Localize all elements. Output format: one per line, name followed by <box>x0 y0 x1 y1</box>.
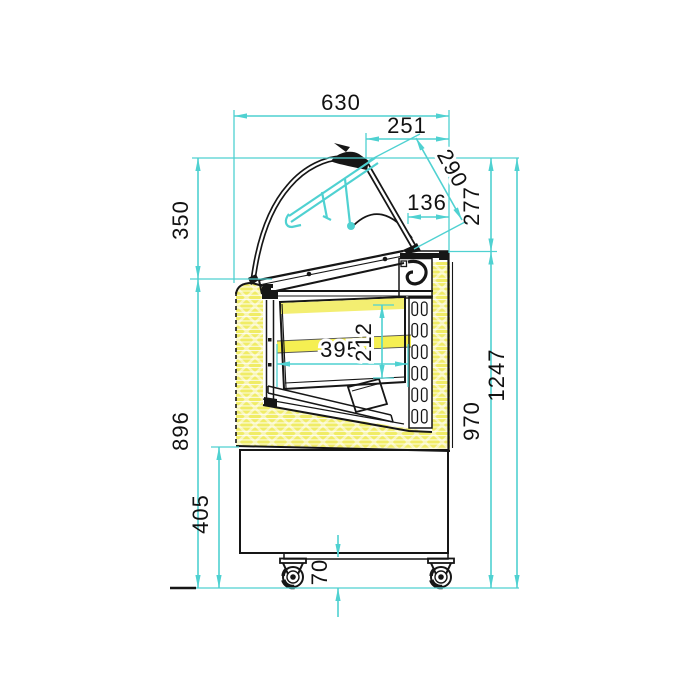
dim-70: 70 <box>307 535 338 617</box>
dim-label: 212 <box>351 322 376 362</box>
dim-896: 896 <box>168 279 198 588</box>
lid-hinge-cap <box>331 152 369 170</box>
rear-duct-pocket <box>399 259 432 299</box>
caster-left <box>280 559 306 588</box>
dimensions: 630 251 290 136 277 350 <box>168 90 519 617</box>
dim-label: 896 <box>168 411 193 451</box>
dim-label: 405 <box>188 494 213 534</box>
dim-label: 1247 <box>484 349 509 402</box>
dim-label: 290 <box>432 145 473 192</box>
dim-label: 350 <box>168 200 193 240</box>
caster-right <box>428 559 454 588</box>
dim-405: 405 <box>188 447 239 588</box>
technical-drawing-page: 630 251 290 136 277 350 <box>0 0 700 700</box>
dim-label: 630 <box>321 90 361 115</box>
dim-970: 970 <box>459 252 491 589</box>
dim-label: 251 <box>387 113 427 138</box>
pivot-dot <box>347 222 355 230</box>
dim-label: 70 <box>307 559 332 585</box>
duct-hook <box>407 261 426 283</box>
base-cabinet <box>240 450 448 559</box>
dim-label: 136 <box>407 190 447 215</box>
dim-label: 970 <box>459 401 484 441</box>
display-case-section-drawing: 630 251 290 136 277 350 <box>0 0 700 700</box>
dim-136: 136 <box>407 190 449 224</box>
counter-board <box>259 251 403 280</box>
screw-dot <box>307 272 312 277</box>
screw-dot <box>383 257 388 262</box>
rear-cap-bar <box>400 253 441 258</box>
dim-1247: 1247 <box>484 158 517 588</box>
dim-label: 277 <box>459 186 484 226</box>
dim-251: 251 <box>366 113 449 159</box>
